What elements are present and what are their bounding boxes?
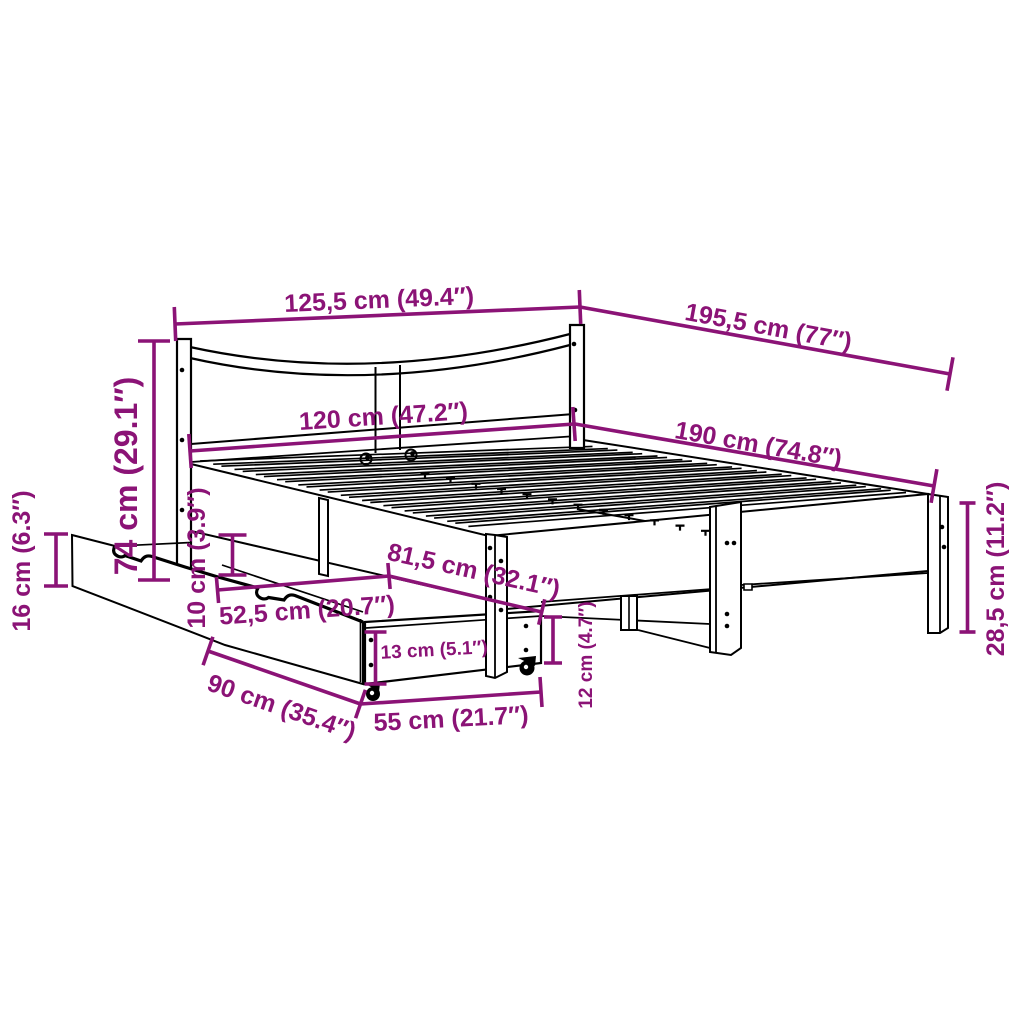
svg-text:28,5 cm (11.2″): 28,5 cm (11.2″) xyxy=(982,482,1010,657)
svg-text:12 cm (4.7″): 12 cm (4.7″) xyxy=(576,601,597,708)
svg-text:10 cm (3.9″): 10 cm (3.9″) xyxy=(183,487,211,628)
svg-text:74 cm (29.1″): 74 cm (29.1″) xyxy=(108,377,144,576)
svg-text:16 cm (6.3″): 16 cm (6.3″) xyxy=(8,490,36,631)
